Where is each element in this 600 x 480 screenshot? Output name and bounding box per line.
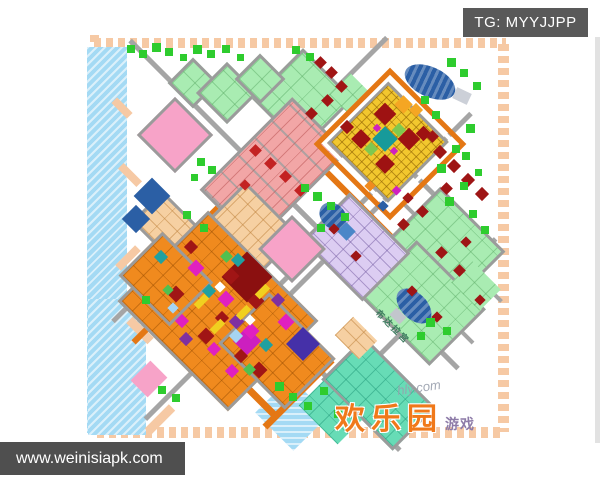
maroon-block: [475, 187, 489, 201]
watermark: hly.com 欢乐园游戏: [335, 380, 515, 438]
watermark-brand-text: 欢乐园: [335, 403, 443, 436]
tree: [426, 318, 435, 327]
tree: [301, 184, 309, 192]
tree: [139, 50, 147, 58]
tree: [473, 82, 481, 90]
tree: [158, 386, 166, 394]
tree: [469, 210, 477, 218]
tree: [317, 224, 325, 232]
watermark-brand-suffix: 游戏: [445, 416, 475, 432]
tree: [197, 158, 205, 166]
tree: [208, 166, 216, 174]
tree: [452, 145, 460, 153]
tree: [237, 54, 244, 61]
tree: [341, 213, 349, 221]
tree: [313, 192, 322, 201]
tree: [289, 393, 297, 401]
site-url-badge: www.weinisiapk.com: [0, 442, 185, 475]
tree: [443, 327, 451, 335]
tree: [200, 224, 208, 232]
tree: [327, 202, 335, 210]
tree: [142, 296, 150, 304]
tree: [466, 124, 475, 133]
tg-badge: TG: MYYJJPP: [463, 8, 588, 37]
tree: [475, 169, 482, 176]
map-border-right: [498, 44, 509, 432]
tree: [275, 382, 284, 391]
tree: [460, 182, 468, 190]
tree: [292, 46, 300, 54]
tree: [304, 402, 312, 410]
tree: [320, 387, 328, 395]
gray-blob: [452, 87, 472, 105]
tree: [193, 45, 202, 54]
page: 布达拉宫 hly.com 欢乐园游戏 TG: MYYJJPP www.weini…: [0, 0, 600, 480]
tree: [460, 69, 468, 77]
tree: [437, 164, 446, 173]
tree: [165, 48, 173, 56]
tree: [421, 96, 429, 104]
tree: [180, 54, 187, 61]
tree: [462, 152, 470, 160]
tree: [172, 394, 180, 402]
watermark-brand: 欢乐园游戏: [335, 394, 475, 438]
tree: [445, 197, 454, 206]
tree: [152, 43, 161, 52]
tree: [191, 174, 198, 181]
page-edge-line: [595, 37, 600, 443]
tree: [432, 111, 440, 119]
tree: [447, 58, 456, 67]
tree: [417, 332, 425, 340]
tree: [481, 226, 489, 234]
tree: [127, 45, 135, 53]
tree: [222, 45, 230, 53]
tree: [207, 50, 215, 58]
tree: [183, 211, 191, 219]
tree: [306, 53, 314, 61]
